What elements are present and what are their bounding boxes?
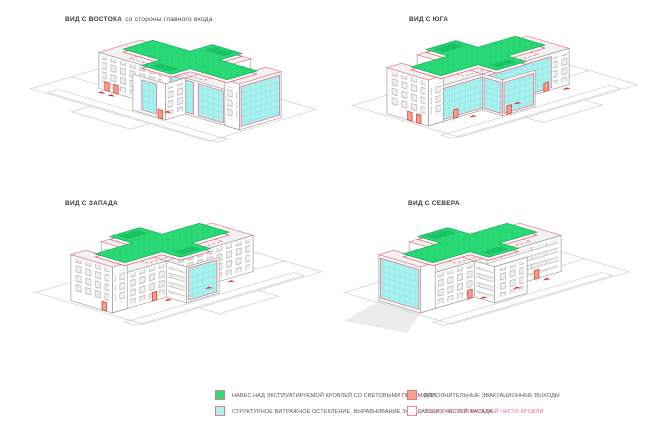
east-view-drawing (12, 34, 322, 149)
view-label-north: ВИД С СЕВЕРА (408, 200, 463, 207)
legend-swatch-exits (407, 390, 417, 400)
axonometry-sheet: ВИД С ВОСТОКАсо стороны главного входа В… (0, 0, 650, 430)
view-label-east: ВИД С ВОСТОКАсо стороны главного входа (65, 16, 213, 23)
view-title: ВИД С ВОСТОКА (65, 16, 122, 23)
view-label-west: ВИД С ЗАПАДА (65, 200, 121, 207)
legend-swatch-canopy (215, 390, 225, 400)
legend-label-roof-zone: ЗОНА ЭКСПЛУАТИРУЕМОЙ ЧАСТИ КРОВЛИ (424, 409, 543, 415)
legend-swatch-glazing (215, 406, 225, 416)
view-subtitle: со стороны главного входа (125, 16, 213, 23)
legend-label-canopy: НАВЕС НАД ЭКСПЛУАТИРУЕМОЙ КРОВЛЕЙ СО СВЕ… (232, 393, 435, 399)
north-view-drawing (327, 217, 629, 336)
view-label-south: ВИД С ЮГА (409, 16, 451, 23)
building-views-canvas (0, 0, 650, 430)
legend-swatch-roof-zone (407, 406, 417, 416)
view-title: ВИД С ЮГА (409, 16, 448, 23)
west-view-drawing (30, 217, 341, 332)
view-title: ВИД С СЕВЕРА (408, 200, 460, 207)
legend-label-exits: ДОПОЛНИТЕЛЬНЫЕ ЭВАКУАЦИОННЫЕ ВЫХОДЫ (424, 393, 560, 399)
view-title: ВИД С ЗАПАДА (65, 200, 118, 207)
south-view-drawing (346, 30, 650, 144)
